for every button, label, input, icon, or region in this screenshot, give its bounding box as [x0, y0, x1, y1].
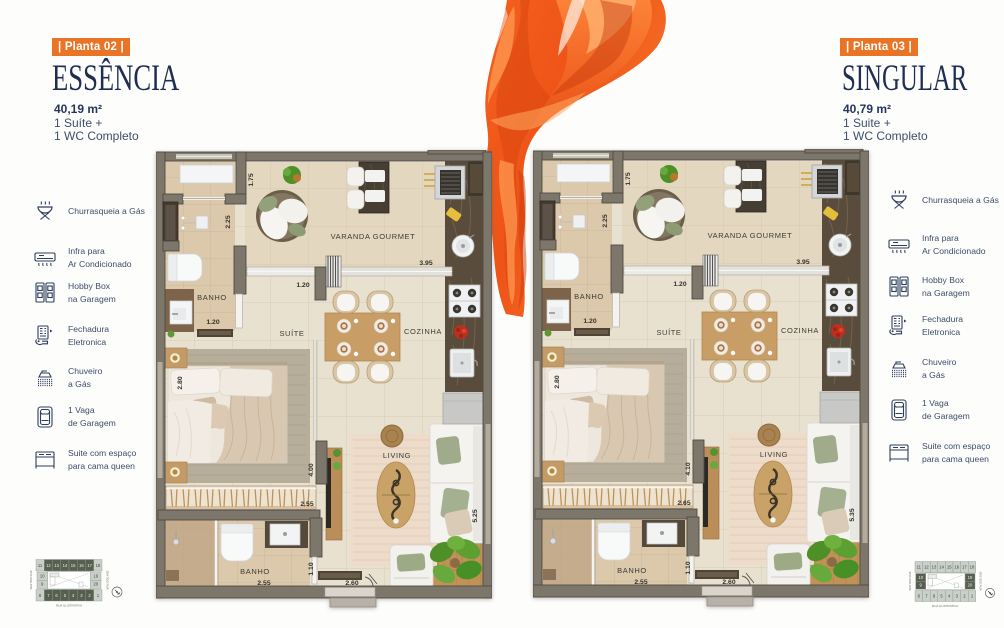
svg-text:5.25: 5.25 [472, 509, 479, 522]
svg-text:20: 20 [93, 582, 98, 587]
svg-text:15: 15 [71, 563, 76, 568]
svg-text:RUA ILUSTRATIVA: RUA ILUSTRATIVA [56, 604, 82, 608]
svg-text:14: 14 [63, 563, 68, 568]
svg-text:SENTIDO RUA: SENTIDO RUA [29, 570, 33, 589]
svg-text:12: 12 [924, 565, 929, 570]
svg-text:10: 10 [40, 574, 45, 579]
svg-text:19: 19 [968, 575, 973, 580]
svg-text:19: 19 [93, 574, 98, 579]
svg-text:17: 17 [87, 563, 92, 568]
svg-text:5.35: 5.35 [849, 508, 856, 521]
svg-text:SENTIDO RUA: SENTIDO RUA [106, 570, 110, 589]
svg-text:2.65: 2.65 [677, 500, 690, 507]
svg-text:4.10: 4.10 [685, 462, 692, 475]
svg-text:18: 18 [96, 563, 101, 568]
svg-text:RUA ILUSTRATIVA: RUA ILUSTRATIVA [932, 604, 958, 608]
svg-text:2.55: 2.55 [300, 501, 313, 508]
svg-text:11: 11 [38, 563, 43, 568]
svg-text:12: 12 [46, 563, 51, 568]
svg-text:18: 18 [970, 565, 975, 570]
svg-text:4.00: 4.00 [308, 463, 315, 476]
svg-text:13: 13 [932, 565, 937, 570]
svg-text:SENTIDO RUA: SENTIDO RUA [908, 571, 912, 590]
svg-text:17: 17 [962, 565, 967, 570]
svg-text:13: 13 [54, 563, 59, 568]
svg-text:10: 10 [918, 575, 923, 580]
svg-text:15: 15 [947, 565, 952, 570]
svg-text:SENTIDO RUA: SENTIDO RUA [979, 571, 983, 590]
svg-text:20: 20 [968, 583, 973, 588]
svg-text:14: 14 [939, 565, 944, 570]
svg-text:11: 11 [917, 565, 922, 570]
svg-text:16: 16 [79, 563, 84, 568]
svg-text:16: 16 [954, 565, 959, 570]
